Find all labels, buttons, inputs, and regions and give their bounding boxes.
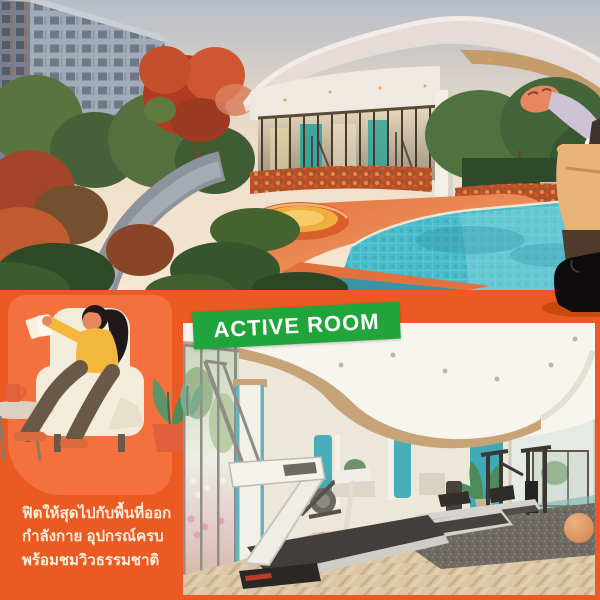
- coffee-mug: [6, 384, 25, 402]
- exercise-ball: [564, 513, 594, 543]
- banner-label: ACTIVE ROOM: [213, 308, 380, 343]
- sandal-right: [60, 439, 88, 448]
- boot: [554, 252, 600, 312]
- bag: [556, 144, 600, 232]
- caption-line-2: กำลังกาย อุปกรณ์ครบ: [22, 525, 171, 548]
- hand: [42, 316, 52, 326]
- caption-line-1: ฟิตให้สุดไปกับพื้นที่ออก: [22, 502, 171, 525]
- active-room-panel: ACTIVE ROOM ฟิตให้สุดไปกับพื้นที่ออก กำล…: [0, 290, 600, 600]
- courtyard-pool-photo: [0, 0, 600, 290]
- gym-scene: [183, 323, 595, 595]
- leaf-accent-illustration: [176, 362, 202, 418]
- woman-armchair-illustration: [0, 298, 200, 508]
- caption-line-3: พร้อมชมวิวธรรมชาติ: [22, 549, 171, 572]
- gym-photo: [183, 323, 595, 595]
- courtyard-scene: [0, 0, 600, 290]
- promo-poster: ACTIVE ROOM ฟิตให้สุดไปกับพื้นที่ออก กำล…: [0, 0, 600, 600]
- caption-text: ฟิตให้สุดไปกับพื้นที่ออก กำลังกาย อุปกรณ…: [22, 502, 171, 572]
- face: [83, 312, 102, 331]
- waving-character-illustration: [518, 82, 600, 322]
- sandal-left: [14, 432, 46, 441]
